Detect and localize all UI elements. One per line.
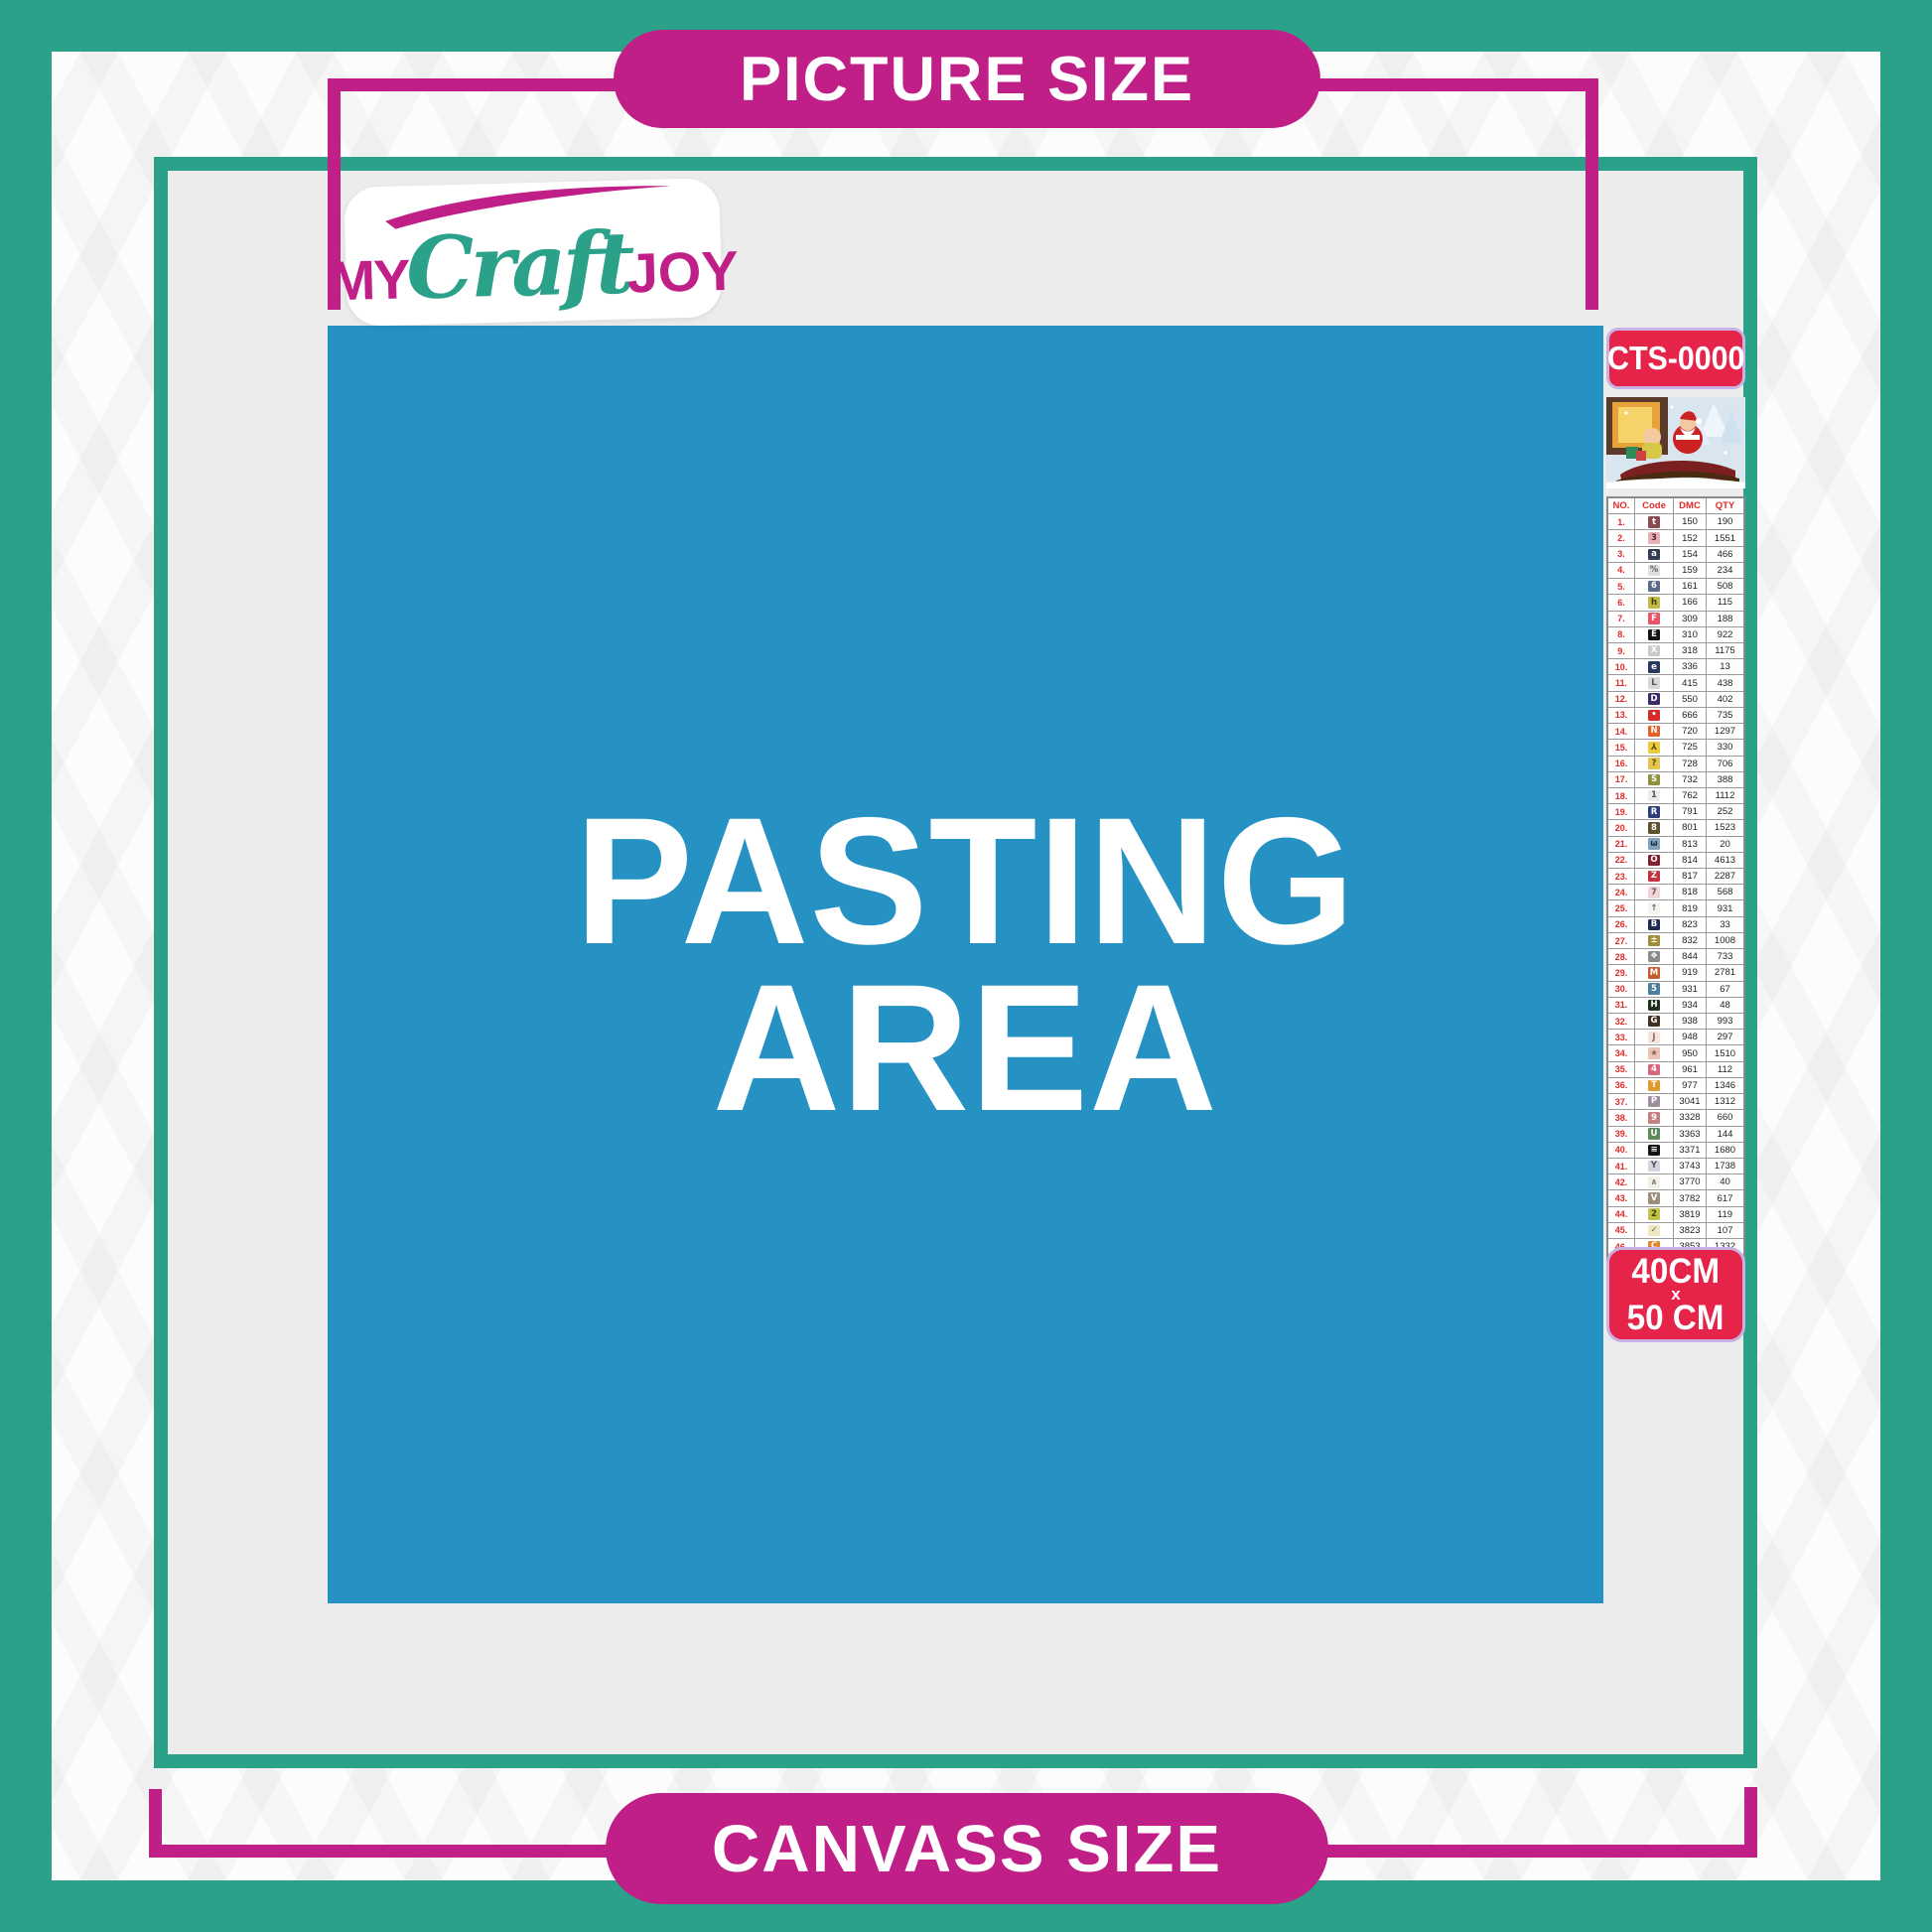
table-row: 12.D550402 [1608, 692, 1743, 708]
symbol-cell: M [1635, 965, 1674, 980]
row-number: 2. [1608, 530, 1635, 545]
row-number: 8. [1608, 627, 1635, 642]
table-header-row: NO.CodeDMCQTY [1608, 498, 1743, 514]
row-number: 40. [1608, 1143, 1635, 1158]
table-row: 25.↑819931 [1608, 900, 1743, 916]
symbol-cell: ↑ [1635, 900, 1674, 915]
row-number: 41. [1608, 1159, 1635, 1173]
symbol-cell: S [1635, 772, 1674, 787]
table-row: 13.•666735 [1608, 708, 1743, 724]
table-row: 7.F309188 [1608, 612, 1743, 627]
row-number: 17. [1608, 772, 1635, 787]
product-code-badge: CTS-0000 [1606, 328, 1745, 389]
symbol-cell: % [1635, 563, 1674, 578]
symbol-swatch: ∧ [1648, 1176, 1660, 1188]
table-row: 43.V3782617 [1608, 1190, 1743, 1206]
symbol-cell: 9 [1635, 1110, 1674, 1125]
row-number: 42. [1608, 1174, 1635, 1189]
symbol-swatch: Z [1648, 871, 1660, 883]
symbol-cell: 1 [1635, 788, 1674, 803]
row-number: 36. [1608, 1078, 1635, 1093]
qty-value: 438 [1707, 675, 1743, 690]
dmc-code: 950 [1674, 1045, 1707, 1060]
symbol-cell: e [1635, 659, 1674, 674]
dmc-code: 762 [1674, 788, 1707, 803]
size-line1: 40CM [1632, 1256, 1721, 1288]
dmc-code: 3819 [1674, 1207, 1707, 1222]
row-number: 1. [1608, 514, 1635, 529]
dmc-code: 819 [1674, 900, 1707, 915]
row-number: 45. [1608, 1223, 1635, 1238]
symbol-cell: 3 [1635, 530, 1674, 545]
dmc-code: 415 [1674, 675, 1707, 690]
dmc-code: 666 [1674, 708, 1707, 723]
dmc-code: 3823 [1674, 1223, 1707, 1238]
qty-value: 735 [1707, 708, 1743, 723]
dmc-code: 801 [1674, 820, 1707, 835]
dmc-code: 152 [1674, 530, 1707, 545]
symbol-cell: F [1635, 612, 1674, 626]
brand-logo: MY Craft JOY [344, 178, 723, 327]
table-row: 24.7818568 [1608, 885, 1743, 900]
row-number: 39. [1608, 1127, 1635, 1142]
table-row: 18.17621112 [1608, 788, 1743, 804]
table-row: 45.✓3823107 [1608, 1223, 1743, 1239]
table-row: 26.B82333 [1608, 917, 1743, 933]
row-number: 34. [1608, 1045, 1635, 1060]
qty-value: 508 [1707, 579, 1743, 594]
qty-value: 2287 [1707, 869, 1743, 884]
row-number: 25. [1608, 900, 1635, 915]
table-header-cell: NO. [1608, 498, 1635, 513]
symbol-swatch: Y [1648, 1161, 1660, 1173]
qty-value: 119 [1707, 1207, 1743, 1222]
table-row: 40.≡33711680 [1608, 1143, 1743, 1159]
symbol-swatch: ↑ [1648, 902, 1660, 914]
table-row: 1.t150190 [1608, 514, 1743, 530]
table-row: 22.O8144613 [1608, 853, 1743, 869]
symbol-swatch: D [1648, 693, 1660, 705]
picture-size-banner: PICTURE SIZE [614, 30, 1320, 128]
canvass-size-banner: CANVASS SIZE [606, 1793, 1328, 1904]
symbol-cell: 4 [1635, 1062, 1674, 1077]
qty-value: 112 [1707, 1062, 1743, 1077]
row-number: 15. [1608, 740, 1635, 755]
symbol-cell: a [1635, 547, 1674, 562]
qty-value: 733 [1707, 949, 1743, 964]
symbol-swatch: • [1648, 710, 1660, 722]
qty-value: 297 [1707, 1030, 1743, 1044]
row-number: 4. [1608, 563, 1635, 578]
dmc-code: 161 [1674, 579, 1707, 594]
symbol-swatch: ⅄ [1648, 742, 1660, 754]
symbol-swatch: ? [1648, 758, 1660, 769]
symbol-swatch: B [1648, 919, 1660, 931]
picture-frame-line-right [1586, 78, 1598, 310]
symbol-swatch: % [1648, 565, 1660, 577]
pasting-area-line1: PASTING [575, 798, 1355, 964]
row-number: 3. [1608, 547, 1635, 562]
qty-value: 144 [1707, 1127, 1743, 1142]
symbol-cell: ❖ [1635, 949, 1674, 964]
dmc-code: 977 [1674, 1078, 1707, 1093]
symbol-swatch: J [1648, 1032, 1660, 1043]
table-row: 35.4961112 [1608, 1062, 1743, 1078]
symbol-swatch: ≡ [1648, 1145, 1660, 1157]
symbol-cell: B [1635, 917, 1674, 932]
table-row: 4.%159234 [1608, 563, 1743, 579]
symbol-swatch: ✓ [1648, 1225, 1660, 1237]
symbol-swatch: H [1648, 1000, 1660, 1012]
symbol-swatch: a [1648, 549, 1660, 561]
logo-part-my: MY [329, 246, 410, 313]
qty-value: 388 [1707, 772, 1743, 787]
symbol-swatch: O [1648, 855, 1660, 867]
product-poster: PASTING AREA PICTURE SIZE CANVASS SIZE M… [0, 0, 1932, 1932]
dmc-code: 931 [1674, 982, 1707, 997]
symbol-cell: 7 [1635, 885, 1674, 899]
table-header-cell: DMC [1674, 498, 1707, 513]
dmc-code: 310 [1674, 627, 1707, 642]
dmc-code: 3371 [1674, 1143, 1707, 1158]
qty-value: 234 [1707, 563, 1743, 578]
qty-value: 190 [1707, 514, 1743, 529]
dmc-code: 150 [1674, 514, 1707, 529]
dmc-code: 948 [1674, 1030, 1707, 1044]
dmc-code: 934 [1674, 998, 1707, 1013]
symbol-swatch: X [1648, 645, 1660, 657]
dmc-code: 817 [1674, 869, 1707, 884]
pasting-area: PASTING AREA [328, 326, 1603, 1603]
row-number: 28. [1608, 949, 1635, 964]
symbol-swatch: V [1648, 1192, 1660, 1204]
row-number: 30. [1608, 982, 1635, 997]
table-row: 19.R791252 [1608, 804, 1743, 820]
symbol-cell: • [1635, 708, 1674, 723]
qty-value: 67 [1707, 982, 1743, 997]
symbol-swatch: 5 [1648, 983, 1660, 995]
symbol-cell: T [1635, 1078, 1674, 1093]
symbol-cell: ≡ [1635, 1143, 1674, 1158]
product-thumbnail [1606, 397, 1745, 488]
symbol-cell: P [1635, 1094, 1674, 1109]
qty-value: 40 [1707, 1174, 1743, 1189]
symbol-cell: ✓ [1635, 1223, 1674, 1238]
dmc-code: 3363 [1674, 1127, 1707, 1142]
qty-value: 1312 [1707, 1094, 1743, 1109]
brush-swoosh-icon [380, 174, 679, 235]
qty-value: 4613 [1707, 853, 1743, 868]
symbol-swatch: S [1648, 774, 1660, 786]
dmc-code: 791 [1674, 804, 1707, 819]
table-row: 9.X3181175 [1608, 643, 1743, 659]
table-row: 15.⅄725330 [1608, 740, 1743, 756]
table-row: 42.∧377040 [1608, 1174, 1743, 1190]
symbol-cell: ⅄ [1635, 740, 1674, 755]
qty-value: 1175 [1707, 643, 1743, 658]
table-row: 6.h166115 [1608, 595, 1743, 611]
table-row: 29.M9192781 [1608, 965, 1743, 981]
symbol-cell: G [1635, 1014, 1674, 1029]
symbol-swatch: 1 [1648, 790, 1660, 802]
symbol-swatch: N [1648, 726, 1660, 738]
qty-value: 617 [1707, 1190, 1743, 1205]
dmc-code: 336 [1674, 659, 1707, 674]
row-number: 27. [1608, 933, 1635, 948]
symbol-cell: 6 [1635, 579, 1674, 594]
row-number: 43. [1608, 1190, 1635, 1205]
symbol-cell: 5 [1635, 982, 1674, 997]
qty-value: 402 [1707, 692, 1743, 707]
table-row: 2.31521551 [1608, 530, 1743, 546]
symbol-cell: 2 [1635, 1207, 1674, 1222]
symbol-cell: X [1635, 643, 1674, 658]
dmc-code: 823 [1674, 917, 1707, 932]
dmc-code: 832 [1674, 933, 1707, 948]
qty-value: 1680 [1707, 1143, 1743, 1158]
qty-value: 330 [1707, 740, 1743, 755]
qty-value: 1551 [1707, 530, 1743, 545]
table-header-cell: QTY [1707, 498, 1743, 513]
qty-value: 1738 [1707, 1159, 1743, 1173]
symbol-swatch: ω [1648, 838, 1660, 850]
row-number: 20. [1608, 820, 1635, 835]
table-row: 28.❖844733 [1608, 949, 1743, 965]
qty-value: 466 [1707, 547, 1743, 562]
canvas-size-badge: 40CM x 50 CM [1606, 1247, 1745, 1342]
qty-value: 188 [1707, 612, 1743, 626]
row-number: 31. [1608, 998, 1635, 1013]
symbol-cell: ω [1635, 837, 1674, 852]
size-line3: 50 CM [1627, 1303, 1725, 1334]
row-number: 32. [1608, 1014, 1635, 1029]
product-code: CTS-0000 [1607, 340, 1744, 377]
symbol-cell: ★ [1635, 1045, 1674, 1060]
table-row: 20.88011523 [1608, 820, 1743, 836]
dmc-code: 318 [1674, 643, 1707, 658]
qty-value: 252 [1707, 804, 1743, 819]
row-number: 44. [1608, 1207, 1635, 1222]
qty-value: 1008 [1707, 933, 1743, 948]
dmc-code: 166 [1674, 595, 1707, 610]
dmc-code: 3041 [1674, 1094, 1707, 1109]
symbol-swatch: 3 [1648, 532, 1660, 544]
symbol-swatch: ★ [1648, 1047, 1660, 1059]
qty-value: 1346 [1707, 1078, 1743, 1093]
symbol-cell: h [1635, 595, 1674, 610]
symbol-swatch: T [1648, 1080, 1660, 1092]
row-number: 16. [1608, 757, 1635, 771]
table-row: 10.e33613 [1608, 659, 1743, 675]
symbol-swatch: E [1648, 629, 1660, 641]
canvass-frame-stub-right [1744, 1787, 1757, 1858]
table-row: 44.23819119 [1608, 1207, 1743, 1223]
qty-value: 2781 [1707, 965, 1743, 980]
dmc-code: 154 [1674, 547, 1707, 562]
symbol-swatch: 7 [1648, 887, 1660, 898]
symbol-cell: ± [1635, 933, 1674, 948]
symbol-swatch: L [1648, 677, 1660, 689]
symbol-cell: ? [1635, 757, 1674, 771]
qty-value: 922 [1707, 627, 1743, 642]
table-row: 11.L415438 [1608, 675, 1743, 691]
symbol-swatch: 4 [1648, 1064, 1660, 1076]
picture-size-label: PICTURE SIZE [740, 44, 1194, 115]
dmc-code: 732 [1674, 772, 1707, 787]
dmc-code: 3743 [1674, 1159, 1707, 1173]
qty-value: 20 [1707, 837, 1743, 852]
canvass-frame-stub-left [149, 1789, 162, 1858]
table-row: 23.Z8172287 [1608, 869, 1743, 885]
symbol-cell: E [1635, 627, 1674, 642]
symbol-swatch: 2 [1648, 1208, 1660, 1220]
symbol-cell: D [1635, 692, 1674, 707]
row-number: 11. [1608, 675, 1635, 690]
symbol-cell: L [1635, 675, 1674, 690]
symbol-cell: Y [1635, 1159, 1674, 1173]
row-number: 18. [1608, 788, 1635, 803]
dmc-code: 938 [1674, 1014, 1707, 1029]
logo-part-joy: JOY [626, 237, 740, 305]
table-row: 31.H93448 [1608, 998, 1743, 1014]
dmc-code: 159 [1674, 563, 1707, 578]
dmc-code: 728 [1674, 757, 1707, 771]
qty-value: 13 [1707, 659, 1743, 674]
qty-value: 1112 [1707, 788, 1743, 803]
qty-value: 1297 [1707, 724, 1743, 739]
dmc-code: 813 [1674, 837, 1707, 852]
symbol-swatch: ± [1648, 935, 1660, 947]
symbol-cell: U [1635, 1127, 1674, 1142]
symbol-swatch: t [1648, 516, 1660, 528]
symbol-swatch: 6 [1648, 581, 1660, 593]
symbol-swatch: R [1648, 806, 1660, 818]
dmc-code: 3770 [1674, 1174, 1707, 1189]
table-row: 14.N7201297 [1608, 724, 1743, 740]
symbol-cell: Z [1635, 869, 1674, 884]
symbol-swatch: U [1648, 1128, 1660, 1140]
dmc-code: 720 [1674, 724, 1707, 739]
table-row: 34.★9501510 [1608, 1045, 1743, 1061]
table-row: 8.E310922 [1608, 627, 1743, 643]
table-row: 30.593167 [1608, 982, 1743, 998]
symbol-cell: V [1635, 1190, 1674, 1205]
row-number: 38. [1608, 1110, 1635, 1125]
symbol-swatch: M [1648, 967, 1660, 979]
dmc-code: 919 [1674, 965, 1707, 980]
table-row: 21.ω81320 [1608, 837, 1743, 853]
symbol-swatch: e [1648, 661, 1660, 673]
brand-logo-text: MY Craft JOY [328, 209, 740, 321]
row-number: 23. [1608, 869, 1635, 884]
row-number: 37. [1608, 1094, 1635, 1109]
table-row: 5.6161508 [1608, 579, 1743, 595]
table-row: 39.U3363144 [1608, 1127, 1743, 1143]
symbol-cell: ∧ [1635, 1174, 1674, 1189]
table-row: 41.Y37431738 [1608, 1159, 1743, 1174]
pasting-area-label: PASTING AREA [575, 798, 1355, 1131]
symbol-cell: 8 [1635, 820, 1674, 835]
symbol-cell: O [1635, 853, 1674, 868]
table-row: 17.S732388 [1608, 772, 1743, 788]
symbol-swatch: 8 [1648, 822, 1660, 834]
qty-value: 1523 [1707, 820, 1743, 835]
dmc-code: 725 [1674, 740, 1707, 755]
dmc-code: 3328 [1674, 1110, 1707, 1125]
symbol-cell: t [1635, 514, 1674, 529]
symbol-swatch: P [1648, 1096, 1660, 1108]
symbol-cell: R [1635, 804, 1674, 819]
dmc-table: NO.CodeDMCQTY1.t1501902.315215513.a15446… [1606, 496, 1745, 1289]
row-number: 9. [1608, 643, 1635, 658]
table-row: 36.T9771346 [1608, 1078, 1743, 1094]
qty-value: 107 [1707, 1223, 1743, 1238]
symbol-swatch: 9 [1648, 1112, 1660, 1124]
row-number: 35. [1608, 1062, 1635, 1077]
row-number: 13. [1608, 708, 1635, 723]
row-number: 7. [1608, 612, 1635, 626]
table-row: 33.J948297 [1608, 1030, 1743, 1045]
dmc-code: 814 [1674, 853, 1707, 868]
dmc-code: 961 [1674, 1062, 1707, 1077]
table-row: 3.a154466 [1608, 547, 1743, 563]
table-row: 32.G938993 [1608, 1014, 1743, 1030]
dmc-code: 309 [1674, 612, 1707, 626]
table-row: 27.±8321008 [1608, 933, 1743, 949]
qty-value: 1510 [1707, 1045, 1743, 1060]
symbol-cell: N [1635, 724, 1674, 739]
symbol-swatch: ❖ [1648, 951, 1660, 963]
qty-value: 48 [1707, 998, 1743, 1013]
table-row: 38.93328660 [1608, 1110, 1743, 1126]
row-number: 22. [1608, 853, 1635, 868]
row-number: 19. [1608, 804, 1635, 819]
qty-value: 993 [1707, 1014, 1743, 1029]
row-number: 29. [1608, 965, 1635, 980]
qty-value: 115 [1707, 595, 1743, 610]
row-number: 6. [1608, 595, 1635, 610]
row-number: 14. [1608, 724, 1635, 739]
symbol-cell: H [1635, 998, 1674, 1013]
qty-value: 660 [1707, 1110, 1743, 1125]
pasting-area-line2: AREA [575, 965, 1355, 1131]
row-number: 33. [1608, 1030, 1635, 1044]
row-number: 21. [1608, 837, 1635, 852]
canvass-size-label: CANVASS SIZE [712, 1811, 1222, 1887]
row-number: 10. [1608, 659, 1635, 674]
dmc-code: 818 [1674, 885, 1707, 899]
symbol-cell: J [1635, 1030, 1674, 1044]
dmc-code: 550 [1674, 692, 1707, 707]
dmc-code: 3782 [1674, 1190, 1707, 1205]
symbol-swatch: F [1648, 613, 1660, 624]
qty-value: 33 [1707, 917, 1743, 932]
row-number: 26. [1608, 917, 1635, 932]
row-number: 5. [1608, 579, 1635, 594]
qty-value: 931 [1707, 900, 1743, 915]
symbol-swatch: h [1648, 597, 1660, 609]
santa-scene-image [1606, 397, 1745, 488]
qty-value: 706 [1707, 757, 1743, 771]
symbol-swatch: G [1648, 1016, 1660, 1028]
qty-value: 568 [1707, 885, 1743, 899]
row-number: 12. [1608, 692, 1635, 707]
table-row: 37.P30411312 [1608, 1094, 1743, 1110]
dmc-code: 844 [1674, 949, 1707, 964]
row-number: 24. [1608, 885, 1635, 899]
table-row: 16.?728706 [1608, 757, 1743, 772]
table-header-cell: Code [1635, 498, 1674, 513]
